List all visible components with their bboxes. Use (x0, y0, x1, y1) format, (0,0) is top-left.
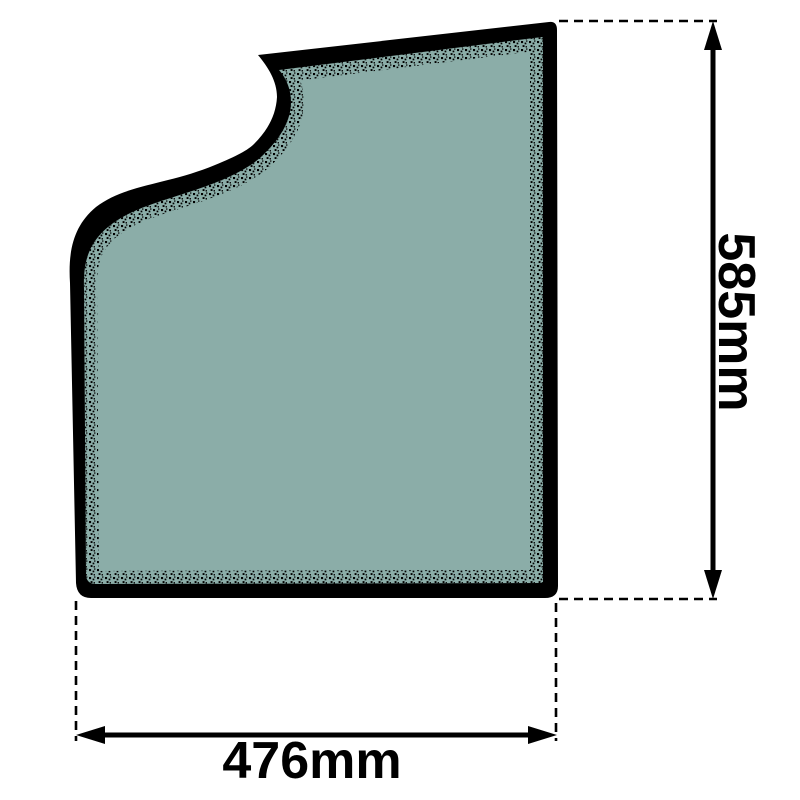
height-dimension-label: 585mm (710, 232, 762, 411)
arrow-down-icon (704, 570, 722, 599)
width-dimension (76, 601, 557, 744)
height-dimension (559, 21, 722, 599)
glass-pane (84, 37, 543, 584)
arrow-right-icon (528, 726, 557, 744)
diagram-canvas: 585mm 476mm (0, 0, 800, 800)
glass-diagram-svg (0, 0, 800, 800)
arrow-up-icon (704, 21, 722, 50)
arrow-left-icon (76, 726, 105, 744)
width-dimension-label: 476mm (222, 735, 401, 787)
